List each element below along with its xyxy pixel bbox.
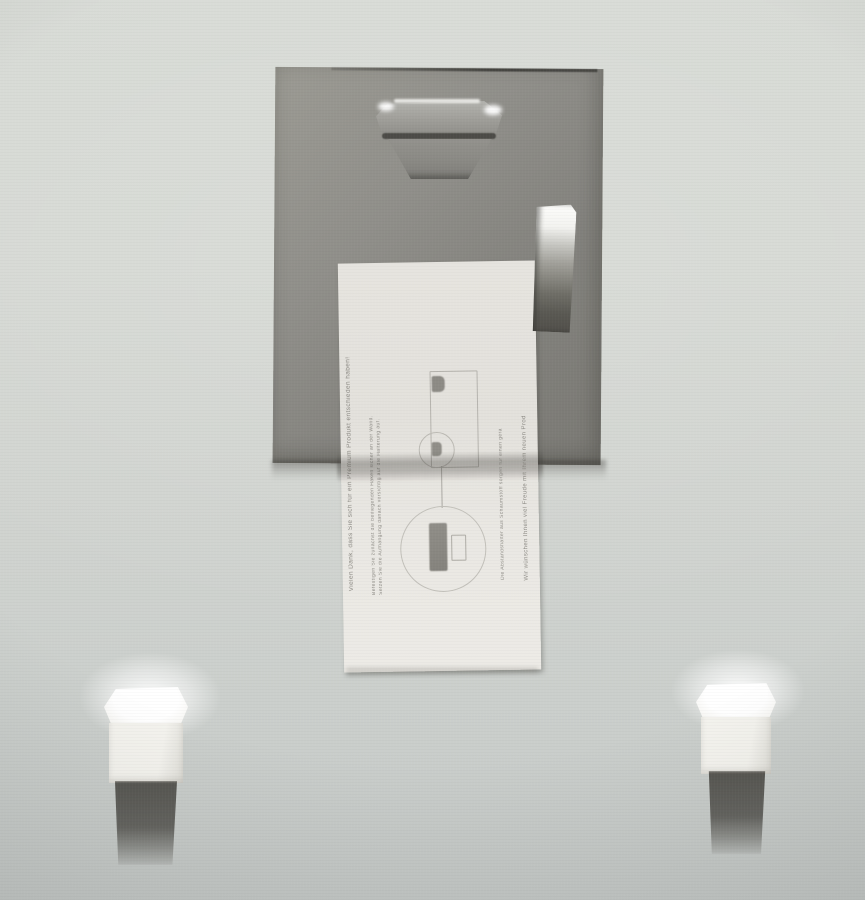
foam-block-right	[701, 717, 771, 774]
card-shadow-band	[337, 450, 543, 482]
diagram-bracket-silhouette	[429, 523, 448, 571]
card-text-wishes: Wir wünschen Ihnen viel Freude mit Ihrem…	[521, 416, 534, 581]
card-bottom-shadow	[346, 668, 538, 675]
foam-shadow-right	[707, 771, 767, 854]
hanger-bracket-slot	[382, 133, 496, 139]
foam-block-left	[109, 723, 183, 783]
bracket-highlight-right	[484, 105, 502, 115]
hanger-bracket-lower-lip	[386, 139, 494, 179]
foam-block-right-top-face	[696, 683, 776, 721]
hanger-bracket	[376, 99, 504, 183]
instruction-card: Vielen Dank, dass Sie sich für ein Premi…	[338, 260, 541, 672]
board-top-edge-line	[331, 67, 597, 72]
hanger-bracket-plate	[376, 101, 502, 135]
bracket-highlight-top	[394, 99, 480, 103]
diagram-bracket-outline	[451, 535, 466, 561]
foam-shadow-left	[113, 781, 179, 865]
diagram-detail-circle-large	[400, 505, 487, 592]
bracket-highlight-left	[378, 102, 394, 111]
diagram-hook-icon	[432, 376, 445, 392]
metal-clip	[531, 203, 577, 333]
photo-scene: Vielen Dank, dass Sie sich für ein Premi…	[0, 0, 865, 900]
foam-block-left-top-face	[104, 687, 188, 727]
